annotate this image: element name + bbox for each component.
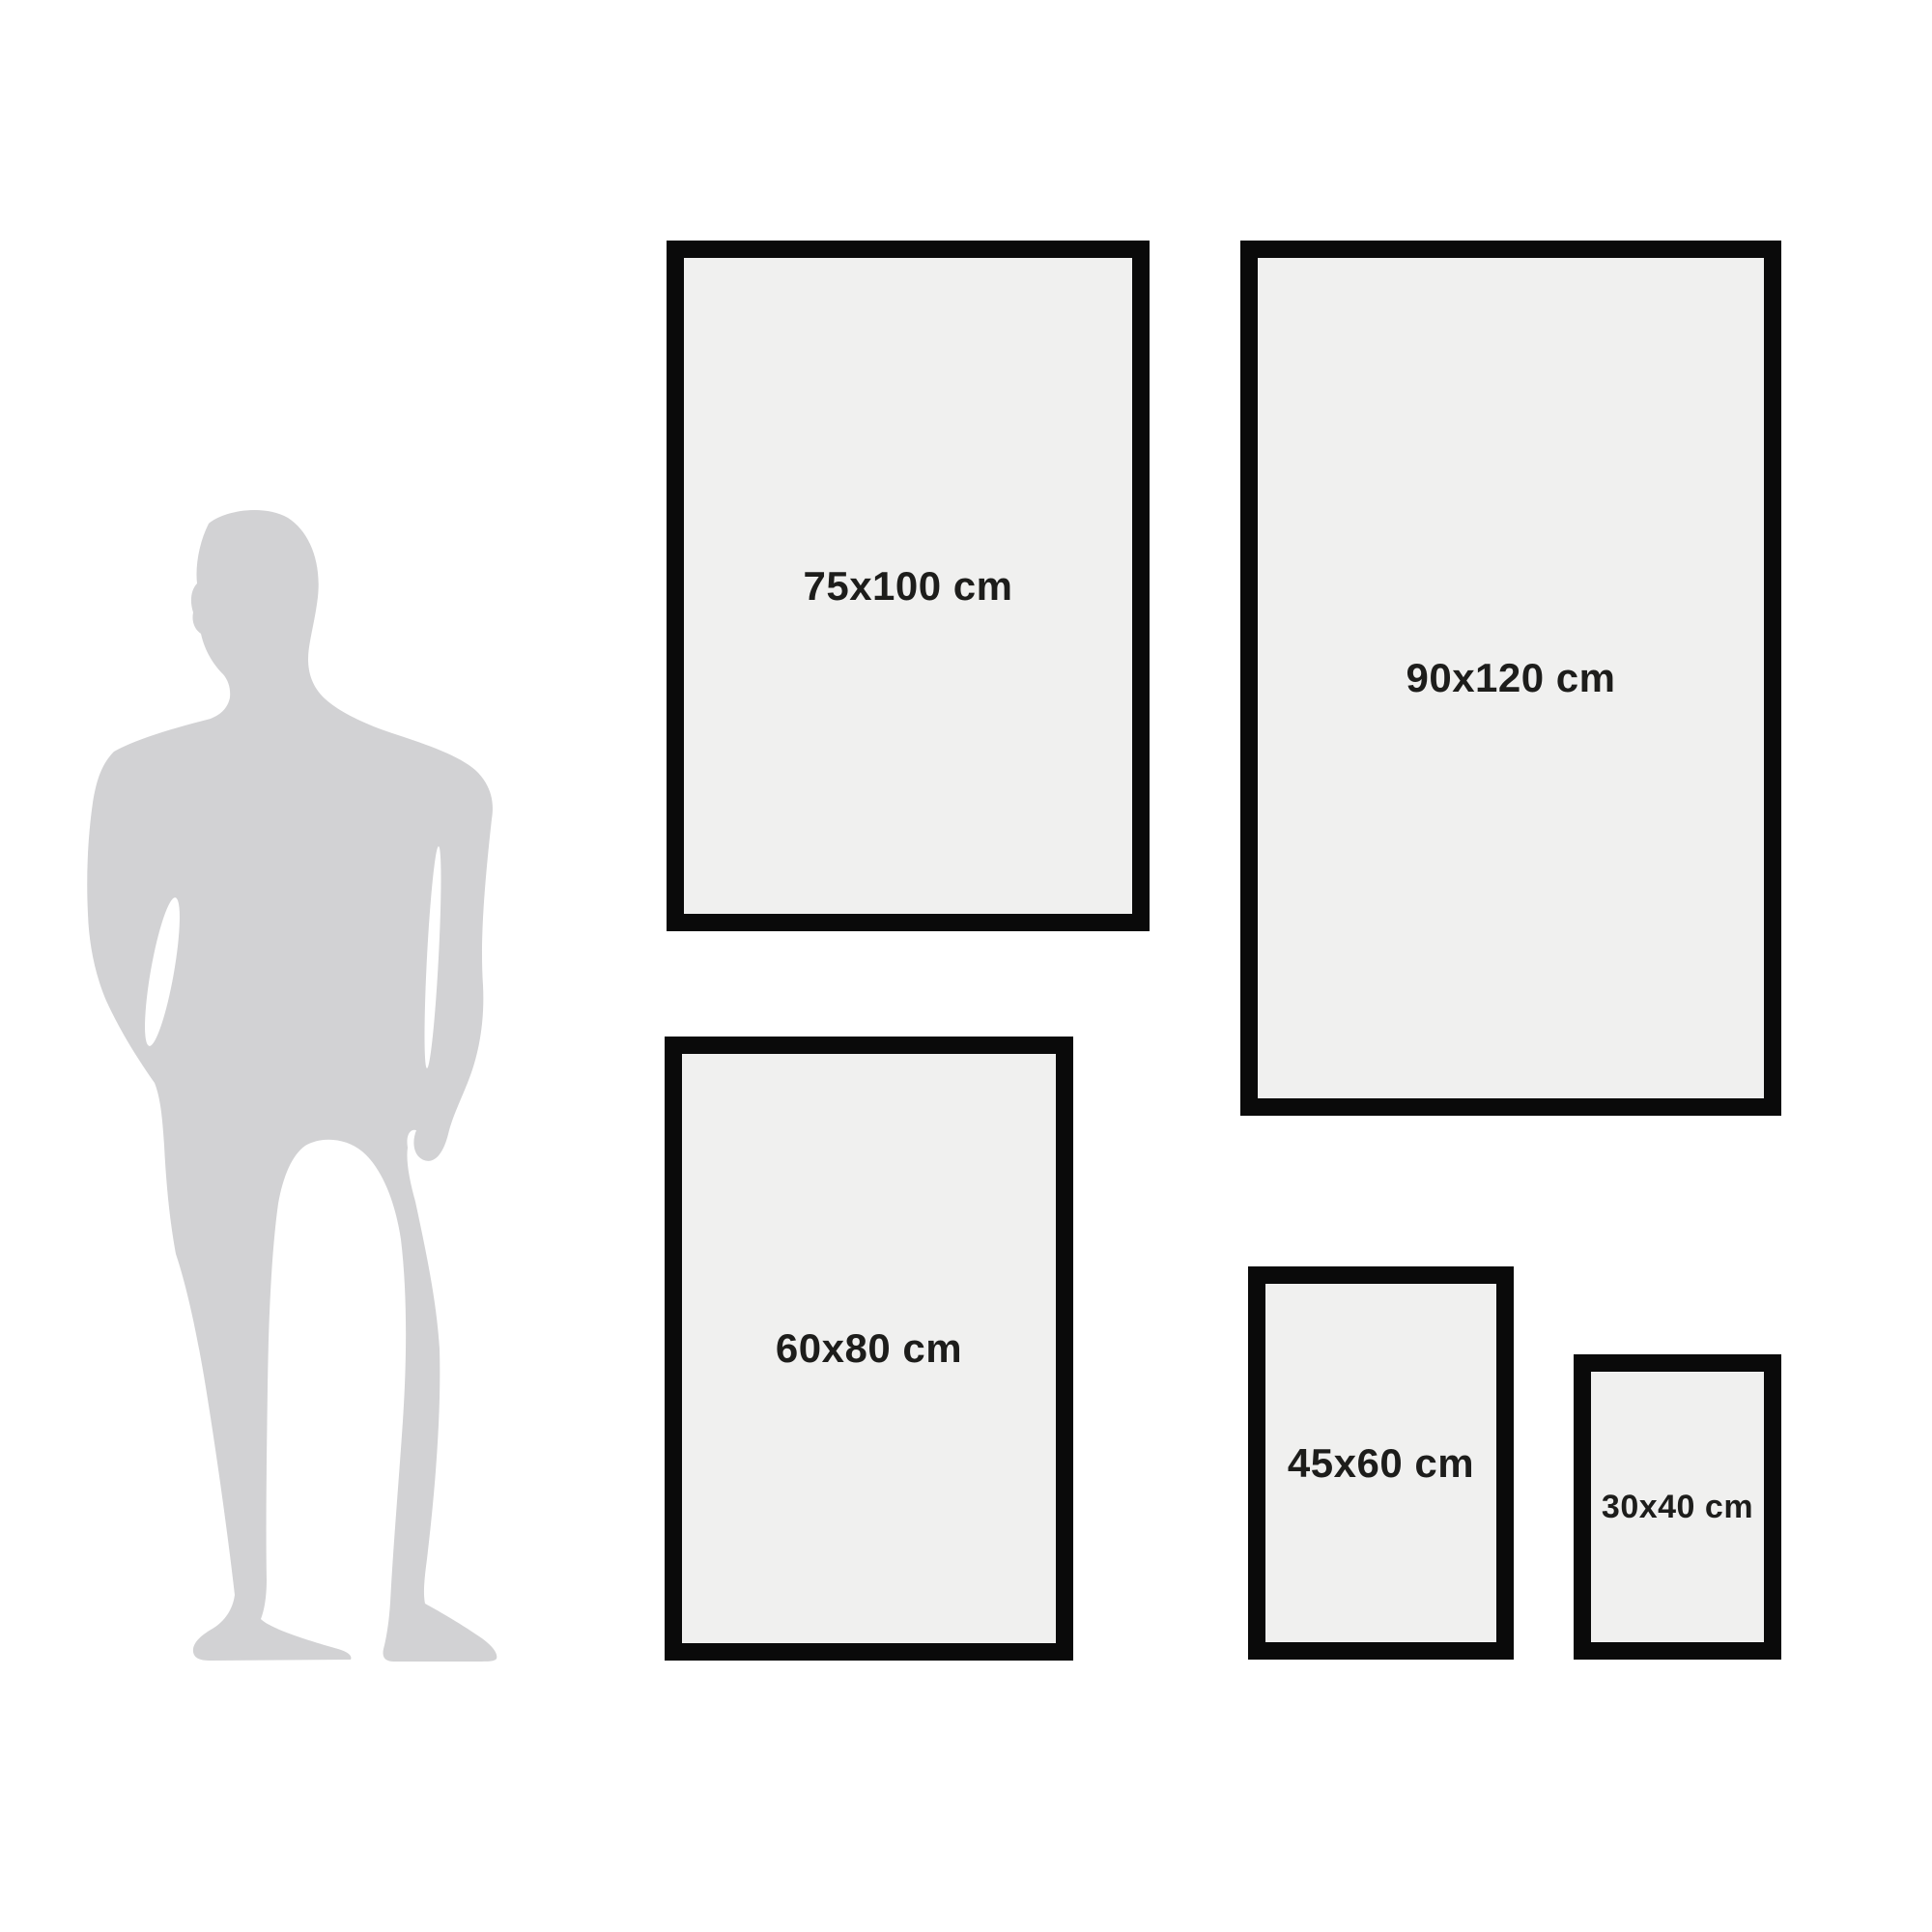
frame-30x40-cm: 30x40 cm	[1574, 1354, 1781, 1660]
frame-60x80-cm: 60x80 cm	[665, 1037, 1073, 1661]
frame-size-label: 60x80 cm	[776, 1325, 962, 1372]
frame-75x100-cm: 75x100 cm	[667, 241, 1150, 931]
frame-size-label: 30x40 cm	[1602, 1489, 1753, 1526]
size-guide-canvas: 75x100 cm 90x120 cm 60x80 cm 45x60 cm 30…	[0, 0, 1932, 1932]
frame-45x60-cm: 45x60 cm	[1248, 1266, 1514, 1660]
frame-90x120-cm: 90x120 cm	[1240, 241, 1781, 1116]
frame-size-label: 90x120 cm	[1406, 655, 1615, 701]
man-silhouette-icon	[85, 508, 504, 1662]
frame-size-label: 75x100 cm	[803, 563, 1012, 610]
frame-size-label: 45x60 cm	[1288, 1440, 1474, 1487]
